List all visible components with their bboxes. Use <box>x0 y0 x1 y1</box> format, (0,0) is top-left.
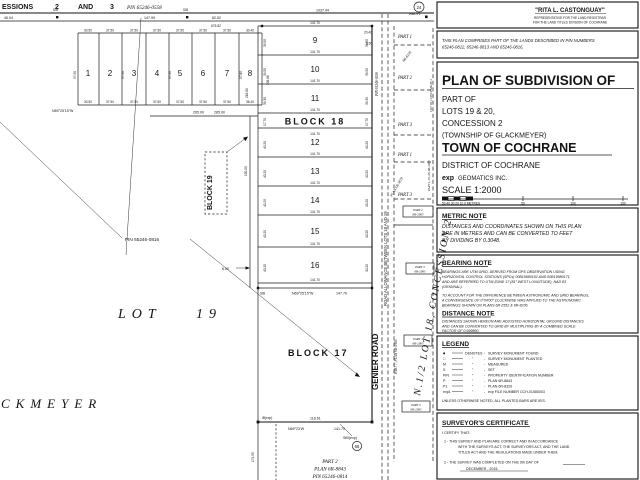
dim-141: 141.70 <box>310 50 320 54</box>
dim-side: 40.20 <box>365 141 369 149</box>
lot-width: 30.40 <box>246 29 254 33</box>
dim-141: 141.70 <box>310 278 320 282</box>
monument-24: 24 <box>417 5 422 10</box>
part-label: PART 1 <box>397 153 412 158</box>
lot-number: 2 <box>108 69 113 78</box>
dim-side: 39.50 <box>263 68 267 76</box>
lot-width: 36.40 <box>246 100 254 104</box>
dim-side: 17.70 <box>263 118 267 126</box>
lot-number: 4 <box>155 69 160 78</box>
title-lots: LOTS 19 & 20, <box>442 107 495 116</box>
dim-82: 82.52 <box>212 16 221 20</box>
part-label: PART 1 <box>397 35 412 40</box>
certificate-item2: 2 - THE SURVEY WAS COMPLETED ON THE 9th … <box>444 461 540 465</box>
genier-road-label: GENIER ROAD <box>371 333 380 390</box>
svg-text:-: - <box>484 385 486 389</box>
legend-rows: ■ DENOTES - SURVEY MONUMENT FOUND □ " - … <box>443 352 554 395</box>
lot-number: 12 <box>311 138 320 147</box>
block-17-label: BLOCK 17 <box>288 348 349 358</box>
dim-side: 40.20 <box>365 264 369 272</box>
pin-0816-callout <box>0 122 360 377</box>
scale-bar-left-labels: 50 40 30 20 10 0 METRES <box>442 202 480 206</box>
pin-0556-label: PIN 65246-0556 <box>375 72 379 97</box>
svg-text:DENOTES: DENOTES <box>465 352 483 356</box>
dim-285: 285.00 <box>214 111 225 115</box>
bearing-note-heading: BEARING NOTE <box>442 260 493 267</box>
title-district: DISTRICT OF COCHRANE <box>442 161 540 170</box>
block-19-label: BLOCK 19 <box>207 175 214 210</box>
svg-text:SURVEY MONUMENT PLANTED: SURVEY MONUMENT PLANTED <box>488 357 543 361</box>
lot-number: 6 <box>201 69 206 78</box>
bearing-note-line: (ORIGINAL). <box>442 285 463 289</box>
sib-exp-mark: SIB(exp) <box>343 436 357 440</box>
bearing-note-line: AND ARE REFERRED TO UTM ZONE 17 (81° WES… <box>441 280 566 284</box>
lot-width: 37.50 <box>223 29 231 33</box>
dim-150: 150.00 <box>244 166 248 176</box>
svg-text:-: - <box>484 368 486 372</box>
part-label: PART 3 <box>397 123 413 128</box>
monument-24-note: WBOY1 <box>409 12 421 16</box>
lot-number: 15 <box>311 227 320 236</box>
dim-side: 39.50 <box>365 68 369 76</box>
distance-note-line: DISTANCES SHOWN HEREON ARE ADJUSTED HORI… <box>442 320 584 324</box>
svg-text:-: - <box>484 390 486 394</box>
svg-text:": " <box>472 385 474 389</box>
metric-note-line2: ARE IN METRES AND CAN BE CONVERTED TO FE… <box>441 231 573 237</box>
comprises-line2: 65246-0812, 65246-0813 AND 65246-0816. <box>442 45 524 50</box>
svg-text:S: S <box>443 368 446 372</box>
bearing-b17: N69°23'W <box>288 427 305 431</box>
title-town: TOWN OF COCHRANE <box>442 141 577 155</box>
dim-9780: 97.80 <box>239 71 243 79</box>
dim-side: 40.20 <box>263 199 267 207</box>
genier-road-lines <box>382 14 433 480</box>
monument-66: 66 <box>355 444 360 449</box>
svg-text:PLAN 6R-8320: PLAN 6R-8320 <box>488 385 512 389</box>
dim-141: 141.70 <box>310 181 320 185</box>
dim-17455: 174.55 <box>251 452 255 462</box>
dim-side: 40.20 <box>365 199 369 207</box>
lot-width: 37.50 <box>106 29 114 33</box>
part7-plan-label: PART 7, PLAN 6R-2985 <box>394 339 399 375</box>
certificate-intro: I CERTIFY THAT: <box>442 431 470 435</box>
distance-note-line: FACTOR OF 0.999860. <box>442 329 479 333</box>
certificate-item1: WITH THE SURVEYS ACT, THE SURVEYORS ACT,… <box>458 445 570 449</box>
distance-note-line: AND CAN BE CONVERTED TO GRID BY MULTIPLY… <box>441 325 576 329</box>
lot-width: 30.50 <box>84 29 92 33</box>
lot-number: 5 <box>178 69 183 78</box>
dim-650: 6.50 <box>366 42 372 46</box>
dim-675: 675.82 <box>211 24 221 28</box>
title-part-of: PART OF <box>442 95 476 104</box>
svg-text:": " <box>472 379 474 383</box>
bearing-note-line: BEARINGS SHOWN ON PLANS 6R-2552 & 6R-823… <box>442 304 528 308</box>
svg-text:PLAN 6R-8843: PLAN 6R-8843 <box>488 379 512 383</box>
survey-plan-sheet: ESSIONS 2 AND 3 PIN 65246-0558 46.04 147… <box>0 0 640 480</box>
bearing-note-line: TO ACCOUNT FOR THE DIFFERENCE BETWEEN AS… <box>442 294 589 298</box>
dim-side: 39.30 <box>365 97 369 105</box>
svg-text:-: - <box>484 357 486 361</box>
svg-text:-: - <box>484 352 486 356</box>
part1-plan-label: PART 1, PLAN 6R-2985 <box>427 160 432 192</box>
dim-side: 40.20 <box>263 141 267 149</box>
lot-width: 37.50 <box>223 100 231 104</box>
part2-south-label: PART 2 <box>321 459 338 465</box>
lot-number: 8 <box>248 69 253 78</box>
lot-width: 30.50 <box>84 100 92 104</box>
sib-mark: SIB <box>183 8 188 12</box>
lot-width: 37.50 <box>106 100 114 104</box>
scale-bar-100: 100 <box>570 202 576 206</box>
dim-141: 141.70 <box>310 108 320 112</box>
bearing-col-bottom: N69°25'15"W <box>292 292 314 296</box>
plan-drawing: ESSIONS 2 AND 3 PIN 65246-0558 46.04 147… <box>0 0 640 480</box>
dim-265: 265.00 <box>193 111 204 115</box>
bearing-note-line: HORIZONTAL CONTROL STATIONS (SPCs) 00B19… <box>442 275 571 279</box>
dim-2040: 20.40 <box>364 31 372 35</box>
svg-text:□: □ <box>443 357 446 361</box>
svg-text:SET: SET <box>488 368 496 372</box>
dim-141: 141.70 <box>310 242 320 246</box>
glackmeyer-label: CKMEYER <box>1 396 102 411</box>
svg-text:": " <box>472 374 474 378</box>
part2-south-plan: PLAN 6R-8843 <box>313 466 346 473</box>
dim-9790: 97.90 <box>73 71 77 79</box>
pin-0816-label: PIN 65246-0816 <box>125 237 160 242</box>
legend-note: UNLESS OTHERWISE NOTED, ALL PLANTED BARS… <box>442 399 546 403</box>
dim-141: 141.70 <box>310 152 320 156</box>
dim-46: 46.04 <box>4 16 13 20</box>
lot-number: 7 <box>225 69 230 78</box>
metric-note-line3: BY DIVIDING BY 0.3048. <box>442 238 500 244</box>
dim-1037: 1037.44 <box>316 9 329 13</box>
part-box-plan: 6R-2985 <box>413 213 424 217</box>
dim-141: 141.70 <box>310 132 320 136</box>
svg-text:-: - <box>484 379 486 383</box>
svg-text:exp FILE NUMBER CCH-01585003: exp FILE NUMBER CCH-01585003 <box>488 390 545 394</box>
svg-text:P: P <box>443 379 446 383</box>
metric-note-heading: METRIC NOTE <box>442 213 487 220</box>
small-lots-grid <box>78 18 262 255</box>
block-18-label: BLOCK 18 <box>285 117 346 127</box>
dim-14170: 141.70 <box>334 427 345 431</box>
bearing-note-line: BEARINGS ARE UTM GRID, DERIVED FROM GPS … <box>442 270 565 274</box>
part-box-label: PART 3 <box>414 265 425 269</box>
lot-width: 37.50 <box>130 29 138 33</box>
plan-ref-diag: 6R-8236 <box>402 50 413 62</box>
svg-text:PROPERTY IDENTIFICATION NUMBER: PROPERTY IDENTIFICATION NUMBER <box>488 374 554 378</box>
svg-text:exp1: exp1 <box>443 390 451 394</box>
certificate-item1: TITLES ACT AND THE REGULATIONS MADE UNDE… <box>458 451 558 455</box>
svg-text:-: - <box>484 374 486 378</box>
dim-9790: 97.90 <box>168 71 172 79</box>
dim-side: 39.50 <box>263 39 267 47</box>
dim-9790: 97.90 <box>121 71 125 79</box>
part-label: PART 2 <box>397 76 413 81</box>
lot-width: 37.50 <box>130 100 138 104</box>
svg-text:-: - <box>484 363 486 367</box>
part-box-label: PART 5 <box>410 403 421 407</box>
concessions-label-1: ESSIONS <box>2 4 33 11</box>
lot-width: 37.50 <box>153 29 161 33</box>
scale-bar-150: 150 <box>620 202 626 206</box>
registrar-line1: REPRESENTATIVE FOR THE LAND REGISTRAR <box>534 16 607 20</box>
firm-exp-logo: exp <box>442 175 454 182</box>
lot-19-number: 19 <box>196 307 222 322</box>
dim-side: 40.20 <box>263 264 267 272</box>
dim-side: 40.20 <box>365 230 369 238</box>
svg-text:": " <box>472 390 474 394</box>
title-scale: SCALE 1:2000 <box>442 185 502 195</box>
bearing-bottom-small-lots: N69°25'15"W <box>52 109 74 113</box>
lot-number: 14 <box>311 196 320 205</box>
part-box-plan: 6R-2985 <box>415 270 426 274</box>
firm-name: GEOMATICS INC. <box>458 176 508 182</box>
lot-number: 3 <box>132 69 137 78</box>
dim-side: 40.20 <box>263 230 267 238</box>
svg-text:■: ■ <box>443 352 445 356</box>
scale-bar <box>442 196 628 201</box>
lot-number: 9 <box>313 36 318 45</box>
dim-side: 17.70 <box>365 118 369 126</box>
dim-side: 39.30 <box>263 97 267 105</box>
registrar-line2: FOR THE LAND TITLES DIVISION OF COCHRANE <box>533 21 607 25</box>
lot-number: 13 <box>311 167 320 176</box>
dim-11861: 118.61 <box>310 417 321 421</box>
road-allowance-label: ROAD ALLOWANCE BETWEEN LOTS 18 AND 19 <box>383 211 388 306</box>
lot-19-label: LOT <box>117 307 162 322</box>
dim-141: 141.70 <box>310 79 320 83</box>
lot-number: 11 <box>311 94 320 103</box>
certificate-item1: 1 - THIS SURVEY AND PLAN ARE CORRECT AND… <box>444 440 559 444</box>
svg-text:M: M <box>443 363 446 367</box>
concessions-label-3: AND <box>78 4 93 11</box>
dim-141: 141.70 <box>310 210 320 214</box>
lot-number: 16 <box>311 261 320 270</box>
dim-14770: 147.70 <box>336 292 347 296</box>
lot-width: 37.50 <box>176 100 184 104</box>
svg-text:": " <box>472 363 474 367</box>
svg-text:SURVEY MONUMENT FOUND: SURVEY MONUMENT FOUND <box>488 352 539 356</box>
part-box-label: PART 2 <box>412 208 423 212</box>
svg-text:P1: P1 <box>443 385 447 389</box>
dim-21680: 216.80 <box>245 88 249 98</box>
part-label: PART 3 <box>397 193 413 198</box>
title-township: (TOWNSHIP OF GLACKMEYER) <box>442 133 546 140</box>
certificate-item2: DECEMBER , 2015. <box>466 467 498 471</box>
plan-title: PLAN OF SUBDIVISION OF <box>442 73 615 88</box>
title-concession: CONCESSION 2 <box>442 119 503 128</box>
sib-mark: SIB <box>260 292 265 296</box>
ib-exp-mark: IB(exp) <box>262 416 272 420</box>
lot-width: 37.50 <box>176 29 184 33</box>
dim-side: 40.20 <box>365 170 369 178</box>
certificate-heading: SURVEYOR'S CERTIFICATE <box>442 420 529 427</box>
pin-road-top: PIN 65246-0558 <box>126 4 162 11</box>
metric-note-line1: DISTANCES AND COORDINATES SHOWN ON THIS … <box>442 224 582 230</box>
svg-text:MEASURED: MEASURED <box>488 363 509 367</box>
legend-heading: LEGEND <box>442 341 469 348</box>
lot-width: 37.50 <box>153 100 161 104</box>
sib-mark: SIB <box>53 8 58 12</box>
bearing-note-line: A CONVERGENCE OF 0°04'00" CLOCKWISE WAS … <box>441 299 581 303</box>
svg-text:PIN: PIN <box>443 374 449 378</box>
svg-text:": " <box>472 357 474 361</box>
scale-bar-50: 50 <box>521 202 525 206</box>
lot-width: 37.50 <box>199 100 207 104</box>
distance-note-heading: DISTANCE NOTE <box>442 311 495 318</box>
lot-width: 37.50 <box>199 29 207 33</box>
registrar-name: "RITA L. CASTONGUAY" <box>535 8 605 14</box>
concessions-label-4: 3 <box>110 4 114 11</box>
svg-text:": " <box>472 368 474 372</box>
lot-number: 1 <box>86 69 91 78</box>
dim-side: 40.20 <box>263 170 267 178</box>
dim-600: 6.00 <box>222 267 229 271</box>
part-box-plan: 6R-2985 <box>411 408 422 412</box>
comprises-line1: THIS PLAN COMPRISES PART OF THE LANDS DE… <box>442 38 595 43</box>
lot-number: 10 <box>311 65 320 74</box>
dim-147: 147.99 <box>144 16 155 20</box>
part2-south-pin: PIN 65246-0814 <box>312 473 348 480</box>
dim-141: 141.70 <box>310 21 320 25</box>
